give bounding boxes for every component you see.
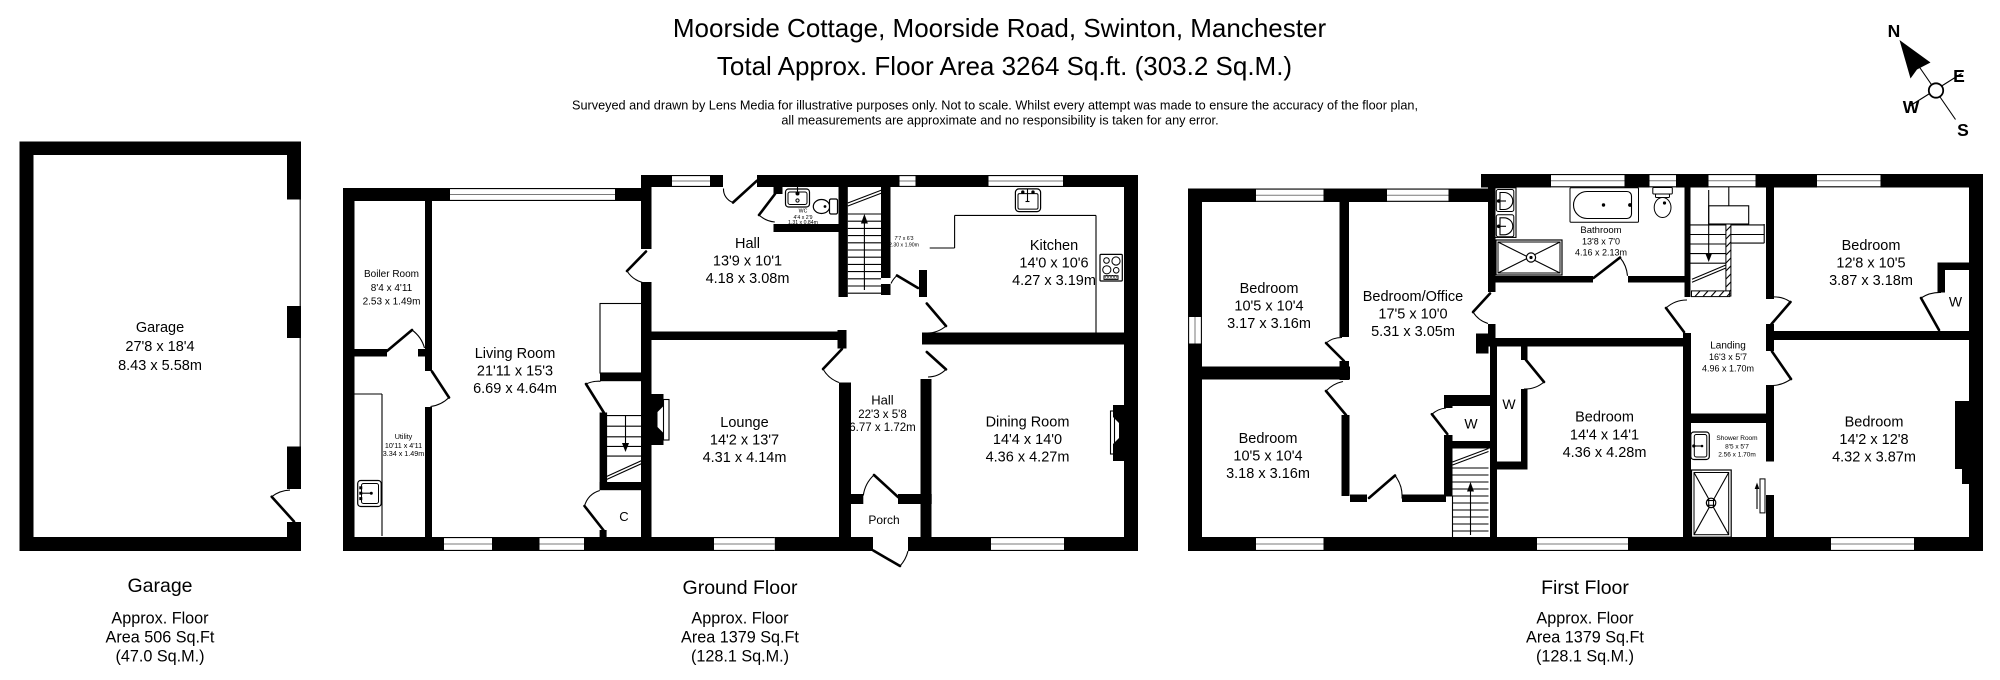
svg-text:Utility: Utility xyxy=(395,432,413,441)
svg-text:S: S xyxy=(1957,120,1969,140)
svg-text:13'8 x 7'0: 13'8 x 7'0 xyxy=(1582,236,1620,246)
svg-text:Shower Room: Shower Room xyxy=(1716,435,1757,442)
svg-text:27'8 x 18'4: 27'8 x 18'4 xyxy=(125,339,194,355)
svg-text:Bedroom: Bedroom xyxy=(1842,238,1901,254)
svg-text:Porch: Porch xyxy=(868,513,899,527)
svg-text:Boiler Room: Boiler Room xyxy=(364,269,419,280)
svg-text:Lounge: Lounge xyxy=(720,415,768,431)
svg-text:3.17 x 3.16m: 3.17 x 3.16m xyxy=(1227,316,1311,332)
svg-text:3.87 x 3.18m: 3.87 x 3.18m xyxy=(1829,273,1913,289)
svg-text:3.18 x 3.16m: 3.18 x 3.16m xyxy=(1226,466,1310,482)
svg-text:4.36 x 4.27m: 4.36 x 4.27m xyxy=(986,450,1070,466)
svg-text:Hall: Hall xyxy=(871,393,894,408)
svg-text:Landing: Landing xyxy=(1710,341,1746,352)
svg-text:7'7 x 6'3: 7'7 x 6'3 xyxy=(895,236,914,242)
svg-text:4.32 x 3.87m: 4.32 x 3.87m xyxy=(1832,450,1916,466)
svg-text:all measurements are approxima: all measurements are approximate and no … xyxy=(781,114,1218,128)
svg-text:8'5 x 5'7: 8'5 x 5'7 xyxy=(1725,444,1749,451)
svg-text:2.56 x 1.70m: 2.56 x 1.70m xyxy=(1718,452,1756,459)
svg-text:4.36 x 4.28m: 4.36 x 4.28m xyxy=(1563,445,1647,461)
svg-text:Dining Room: Dining Room xyxy=(986,415,1070,431)
svg-text:(47.0 Sq.M.): (47.0 Sq.M.) xyxy=(115,648,204,666)
svg-text:14'4 x 14'0: 14'4 x 14'0 xyxy=(993,432,1062,448)
svg-text:Approx. Floor: Approx. Floor xyxy=(111,610,209,628)
svg-text:(128.1 Sq.M.): (128.1 Sq.M.) xyxy=(1536,648,1634,666)
svg-text:4.96 x 1.70m: 4.96 x 1.70m xyxy=(1702,364,1754,374)
svg-text:21'11 x 15'3: 21'11 x 15'3 xyxy=(477,364,553,380)
svg-text:4.18 x 3.08m: 4.18 x 3.08m xyxy=(706,271,790,287)
svg-text:Garage: Garage xyxy=(136,320,184,336)
svg-text:Surveyed and drawn by Lens Med: Surveyed and drawn by Lens Media for ill… xyxy=(572,99,1418,113)
svg-text:2.53 x 1.49m: 2.53 x 1.49m xyxy=(363,297,421,308)
svg-text:13'9 x 10'1: 13'9 x 10'1 xyxy=(713,254,782,270)
svg-text:W: W xyxy=(1464,416,1478,432)
svg-text:WC: WC xyxy=(799,209,808,215)
svg-text:14'4 x 14'1: 14'4 x 14'1 xyxy=(1570,428,1639,444)
svg-text:Area 1379 Sq.Ft: Area 1379 Sq.Ft xyxy=(681,629,799,647)
svg-text:Bedroom: Bedroom xyxy=(1240,281,1299,297)
svg-text:W: W xyxy=(1502,396,1516,412)
svg-text:5.31 x 3.05m: 5.31 x 3.05m xyxy=(1371,324,1455,340)
svg-text:Total Approx. Floor Area 3264: Total Approx. Floor Area 3264 Sq.ft. (30… xyxy=(717,51,1292,81)
svg-text:10'5 x 10'4: 10'5 x 10'4 xyxy=(1233,449,1302,465)
svg-text:Approx. Floor: Approx. Floor xyxy=(691,610,789,628)
svg-text:(128.1 Sq.M.): (128.1 Sq.M.) xyxy=(691,648,789,666)
svg-text:N: N xyxy=(1888,21,1901,41)
svg-text:Area 1379 Sq.Ft: Area 1379 Sq.Ft xyxy=(1526,629,1644,647)
svg-text:17'5 x 10'0: 17'5 x 10'0 xyxy=(1378,307,1447,323)
svg-text:4.31 x 4.14m: 4.31 x 4.14m xyxy=(703,450,787,466)
svg-text:0000: 0000 xyxy=(1105,275,1117,281)
svg-text:14'0 x 10'6: 14'0 x 10'6 xyxy=(1019,256,1088,272)
svg-text:First Floor: First Floor xyxy=(1541,577,1629,599)
svg-text:Garage: Garage xyxy=(127,575,192,597)
svg-text:3.34 x 1.49m: 3.34 x 1.49m xyxy=(383,449,425,458)
svg-text:Bedroom/Office: Bedroom/Office xyxy=(1363,289,1463,305)
svg-text:E: E xyxy=(1953,66,1965,86)
svg-text:4.16 x 2.13m: 4.16 x 2.13m xyxy=(1575,248,1627,258)
svg-text:Bedroom: Bedroom xyxy=(1239,431,1298,447)
svg-text:Moorside Cottage, Moorside Roa: Moorside Cottage, Moorside Road, Swinton… xyxy=(673,13,1327,43)
svg-text:10'5 x 10'4: 10'5 x 10'4 xyxy=(1234,299,1303,315)
svg-text:14'2 x 12'8: 14'2 x 12'8 xyxy=(1839,432,1908,448)
svg-text:1.31 x 0.84m: 1.31 x 0.84m xyxy=(788,220,818,226)
svg-text:14'2 x 13'7: 14'2 x 13'7 xyxy=(710,433,779,449)
svg-text:Hall: Hall xyxy=(735,236,760,252)
svg-text:Kitchen: Kitchen xyxy=(1030,238,1078,254)
svg-text:Bedroom: Bedroom xyxy=(1575,410,1634,426)
svg-text:8.43 x 5.58m: 8.43 x 5.58m xyxy=(118,358,202,374)
svg-text:2.30 x 1.90m: 2.30 x 1.90m xyxy=(889,243,919,249)
svg-text:22'3 x 5'8: 22'3 x 5'8 xyxy=(858,409,907,421)
svg-text:W: W xyxy=(1949,294,1963,310)
svg-text:16'3 x 5'7: 16'3 x 5'7 xyxy=(1709,352,1747,362)
svg-text:Ground Floor: Ground Floor xyxy=(683,577,798,599)
svg-text:Bathroom: Bathroom xyxy=(1580,225,1621,236)
svg-text:4.27 x 3.19m: 4.27 x 3.19m xyxy=(1012,273,1096,289)
svg-text:Approx. Floor: Approx. Floor xyxy=(1536,610,1634,628)
svg-text:Living Room: Living Room xyxy=(475,346,556,362)
svg-text:12'8 x 10'5: 12'8 x 10'5 xyxy=(1836,256,1905,272)
svg-text:Area 506 Sq.Ft: Area 506 Sq.Ft xyxy=(106,629,215,647)
svg-text:6.77 x 1.72m: 6.77 x 1.72m xyxy=(849,422,915,434)
svg-text:W: W xyxy=(1903,97,1920,117)
svg-text:C: C xyxy=(619,509,628,524)
svg-text:8'4 x 4'11: 8'4 x 4'11 xyxy=(371,283,413,294)
svg-text:6.69 x 4.64m: 6.69 x 4.64m xyxy=(473,381,557,397)
svg-text:Bedroom: Bedroom xyxy=(1845,415,1904,431)
